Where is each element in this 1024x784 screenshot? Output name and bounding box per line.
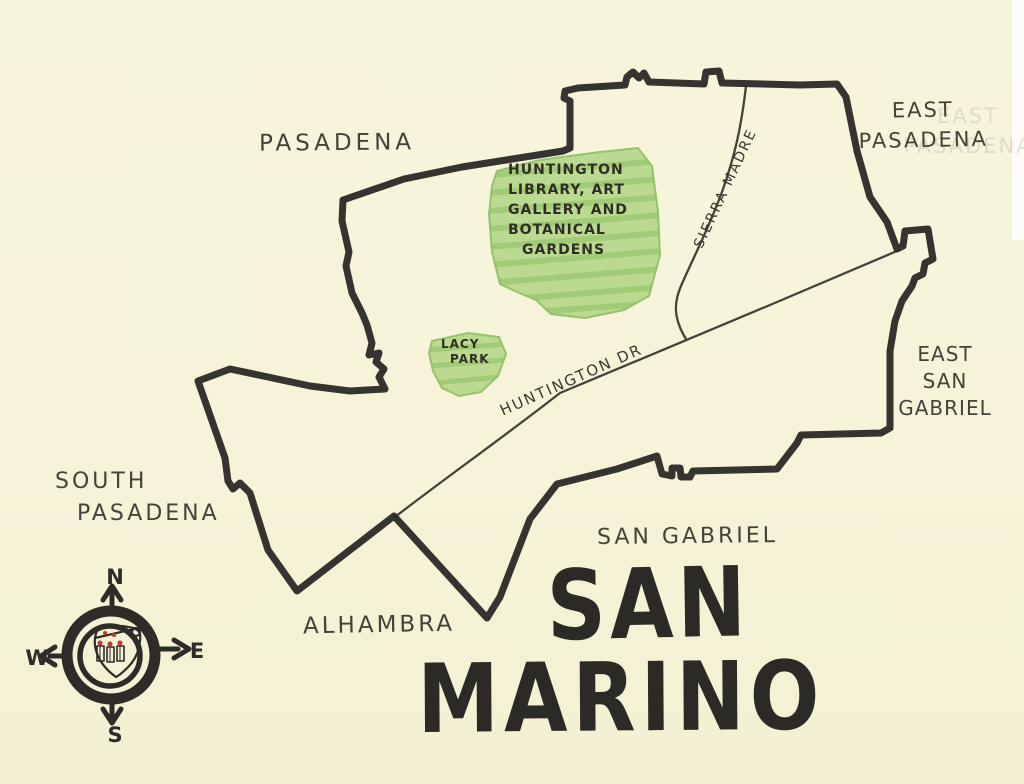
label-lacy-park-line1: LACY (441, 337, 490, 352)
map-title-line2: MARINO (417, 642, 825, 755)
label-east-pasadena: EAST PASADENA (852, 94, 993, 156)
label-south-pasadena: SOUTH PASADENA (55, 466, 220, 530)
compass-east-label: E (190, 639, 204, 663)
compass-south-label: S (107, 723, 122, 747)
compass-west-label: W (25, 646, 48, 670)
label-lacy-park-line2: PARK (450, 352, 490, 367)
label-pasadena: PASADENA (259, 129, 415, 156)
label-south-pasadena-line2: PASADENA (77, 498, 220, 530)
label-san-gabriel: SAN GABRIEL (597, 523, 778, 550)
compass-rose-icon: N E W S (25, 565, 204, 747)
label-huntington-gardens-line5: GARDENS (522, 240, 628, 260)
label-huntington-gardens-line3: GALLERY AND (508, 200, 628, 220)
label-alhambra: ALHAMBRA (303, 611, 455, 640)
label-east-pasadena-line1: EAST (852, 94, 993, 126)
label-east-san-gabriel-line1: EAST (888, 341, 1002, 368)
label-south-pasadena-line1: SOUTH (55, 466, 220, 498)
label-huntington-gardens-line2: LIBRARY, ART (508, 180, 628, 200)
compass-north-label: N (106, 565, 124, 589)
roads (395, 86, 897, 517)
hand-drawn-map: N E W S PASADENA EAST PASADENA EAST PASA… (0, 0, 1024, 784)
compass-rings-and-arrows (41, 586, 189, 723)
label-east-san-gabriel-line2: SAN (888, 368, 1002, 395)
label-east-san-gabriel-line3: GABRIEL (888, 395, 1002, 422)
label-east-pasadena-line2: PASADENA (853, 124, 994, 156)
label-huntington-gardens-line1: HUNTINGTON (508, 160, 628, 180)
label-huntington-gardens: HUNTINGTON LIBRARY, ART GALLERY AND BOTA… (508, 160, 628, 260)
compass-east-arrow (156, 640, 189, 658)
label-lacy-park: LACY PARK (441, 337, 490, 367)
label-east-san-gabriel: EAST SAN GABRIEL (888, 341, 1002, 422)
label-huntington-gardens-line4: BOTANICAL (508, 220, 628, 240)
city-crest-icon (95, 626, 140, 677)
